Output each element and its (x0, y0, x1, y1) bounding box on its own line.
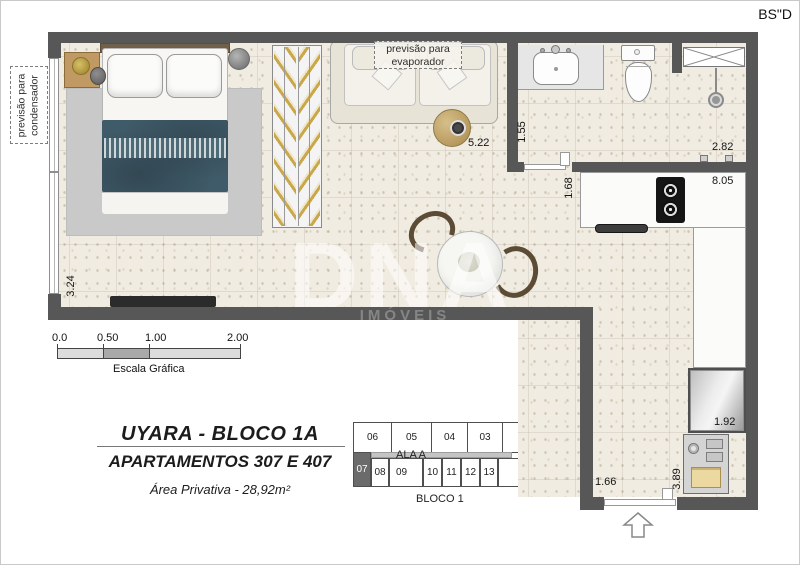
wall-shower-stub (672, 43, 682, 73)
key-unit-12: 12 (461, 458, 480, 487)
shower-tap-left (700, 155, 708, 162)
dim-fridge: 1.92 (714, 416, 735, 428)
scale-tick-0: 0.0 (52, 332, 67, 344)
wall-entry-right (677, 497, 758, 510)
x-hatch-icon (684, 48, 744, 66)
dim-bedroom: 3.24 (64, 269, 78, 303)
key-unit-03: 03 (467, 422, 503, 453)
side-table-decor (450, 120, 466, 136)
floor-lamp (228, 48, 250, 70)
note-evaporator: previsão para evaporador (374, 41, 462, 69)
sink-drain-dot (554, 67, 558, 71)
dim-hall: 1.68 (562, 171, 576, 205)
scale-tick-2: 2.00 (227, 332, 248, 344)
pillow-right (166, 54, 222, 98)
washer-panel-bottom (706, 452, 723, 462)
pillow-left (107, 54, 163, 98)
note-condenser-text: previsão para condensador (16, 67, 43, 145)
page-subtitle: APARTAMENTOS 307 E 407 (100, 452, 340, 472)
note-evaporator-line2: evaporador (375, 56, 461, 69)
scale-bar-tick-mark-2 (149, 344, 150, 359)
wall-mid-vertical (580, 307, 593, 510)
plant-decor (72, 57, 90, 75)
dim-entry: 1.66 (595, 476, 616, 488)
bed-foot-fold (102, 192, 228, 214)
scale-caption: Escala Gráfica (113, 363, 185, 375)
dim-bath: 1.55 (515, 115, 529, 149)
towel (691, 467, 721, 488)
wall-bottom-left-room (48, 307, 593, 320)
scale-bar (57, 348, 241, 359)
washer-panel-top (706, 439, 723, 449)
key-unit-09: 09 (389, 458, 423, 487)
burner-icon-top (662, 182, 679, 199)
wardrobe-hangers-right (298, 47, 320, 226)
wardrobe-hangers-left (274, 47, 296, 226)
key-unit-11: 11 (442, 458, 461, 487)
scale-tick-1: 1.00 (145, 332, 166, 344)
floor-plan-canvas: BS"D (0, 0, 800, 565)
watermark-sub: IMÓVEIS (350, 307, 460, 324)
wall-left-top-corner (48, 32, 61, 58)
scale-bar-dark-segment (103, 349, 149, 358)
toilet-seat-line (626, 66, 651, 67)
scale-bar-tick-mark-3 (240, 344, 241, 359)
note-evaporator-line1: previsão para (375, 43, 461, 56)
key-unit-13: 13 (480, 458, 498, 487)
bath-door-jamb (560, 152, 570, 166)
kitchen-sink-strip (595, 224, 648, 233)
wall-entry-left (580, 497, 604, 510)
tv (110, 296, 216, 307)
note-condenser: previsão para condensador (10, 66, 48, 144)
note-condenser-line1: previsão para (16, 67, 29, 145)
faucet-icon (551, 45, 560, 54)
bsd-label: BS"D (758, 6, 792, 22)
key-unit-07-highlighted: 07 (353, 452, 371, 487)
entry-arrow-icon (622, 512, 654, 539)
dim-living: 5.22 (468, 137, 489, 149)
cooktop (656, 177, 685, 223)
faucet-handle-right (566, 48, 571, 53)
washer-knob-icon (688, 443, 699, 454)
private-area-label: Área Privativa - 28,92m² (110, 482, 330, 497)
shower-tap-right (725, 155, 733, 162)
key-unit-10: 10 (423, 458, 442, 487)
faucet-handle-left (540, 48, 545, 53)
key-unit-06: 06 (353, 422, 392, 453)
wing-label: ALA A (396, 449, 440, 461)
wall-bath-bottom (572, 162, 746, 172)
shower-niche (683, 47, 745, 67)
toilet-flush-button (634, 49, 640, 55)
window-left (49, 58, 59, 294)
burner-icon-bottom (662, 201, 679, 218)
shower-drain-center (712, 96, 720, 104)
bedside-lamp-left (90, 67, 106, 85)
wall-right (746, 32, 758, 510)
kitchen-counter-right (693, 228, 746, 368)
scale-bar-tick-mark-1 (103, 344, 104, 359)
entry-door-leaf (604, 499, 676, 506)
dim-shower: 2.82 (712, 141, 733, 153)
window-glass-line (54, 59, 55, 293)
page-title: UYARA - BLOCO 1A (100, 423, 340, 446)
block-label: BLOCO 1 (416, 493, 506, 505)
key-unit-08: 08 (371, 458, 389, 487)
scale-tick-05: 0.50 (97, 332, 118, 344)
shower-column-line (715, 68, 717, 94)
note-condenser-line2: condensador (28, 67, 41, 145)
title-divider (97, 446, 345, 447)
window-mullion (50, 171, 58, 173)
scale-bar-tick-mark-0 (57, 344, 58, 359)
blanket-stripe-band (104, 138, 226, 158)
wall-bath-bottom-stub (507, 162, 524, 172)
dim-service: 3.89 (670, 462, 684, 496)
dim-kitchen: 8.05 (712, 175, 733, 187)
